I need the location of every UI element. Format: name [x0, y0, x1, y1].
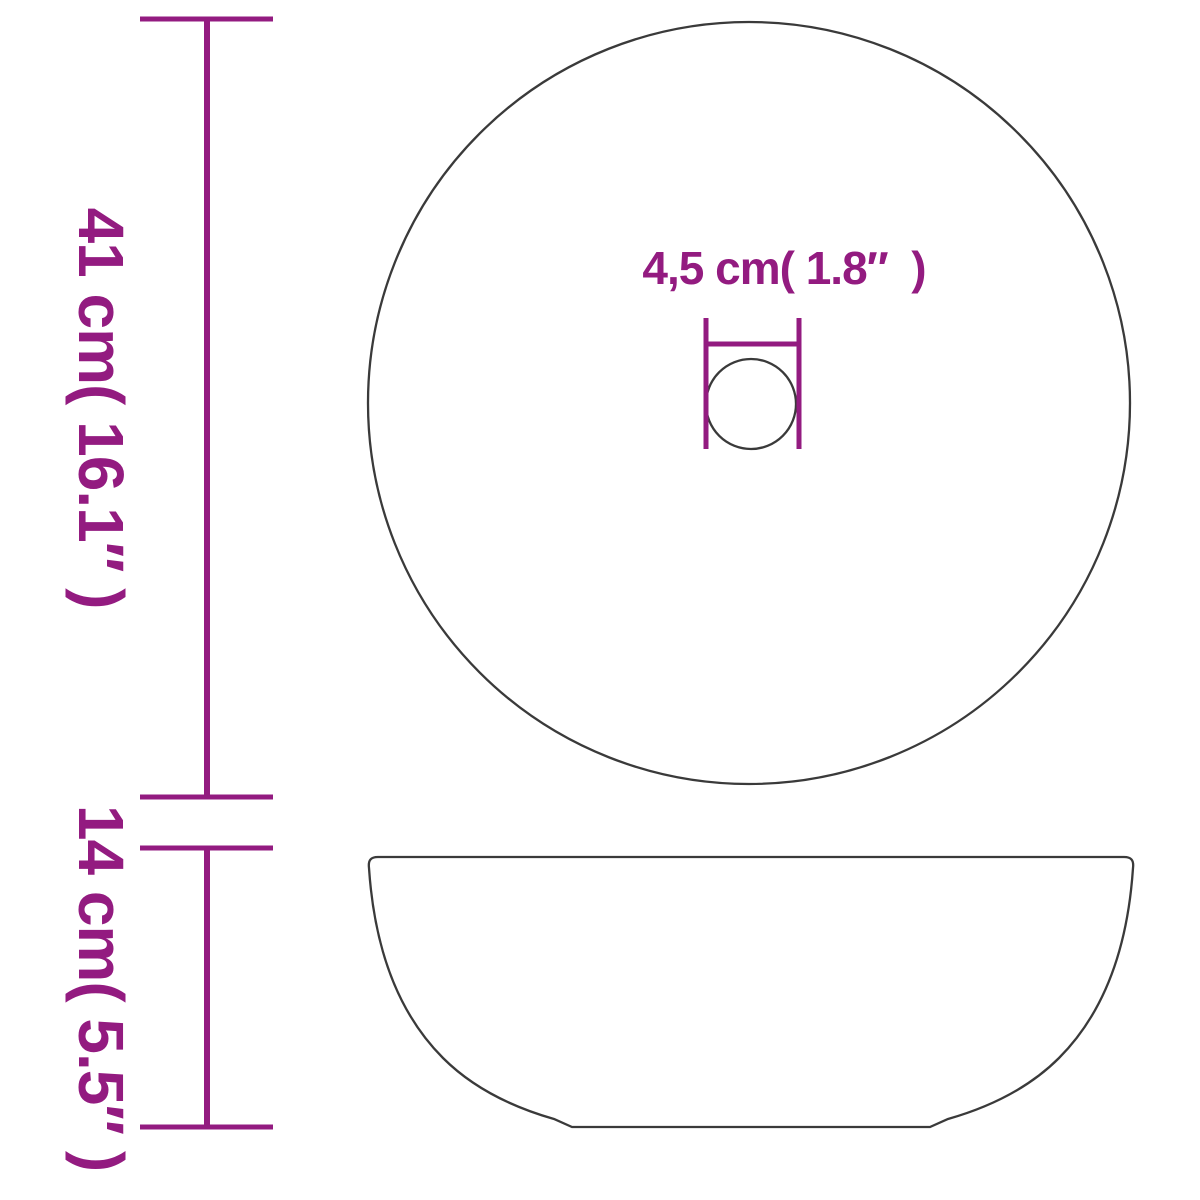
dimension-label-drain-diameter: 4,5 cm( 1.8″ ) [642, 245, 925, 291]
drain-hole-circle [706, 359, 796, 449]
basin-top-view-circle [368, 22, 1130, 784]
product-dimension-diagram: 41 cm( 16.1″ ) 14 cm( 5.5″ ) 4,5 cm( 1.8… [0, 0, 1200, 1200]
diagram-drawing [0, 0, 1200, 1200]
basin-side-view-outline [369, 857, 1133, 1127]
dimension-label-basin-height: 14 cm( 5.5″ ) [69, 805, 133, 1171]
basin-height-dimension [140, 848, 273, 1127]
dimension-label-total-height: 41 cm( 16.1″ ) [69, 208, 133, 609]
total-height-dimension [140, 19, 273, 797]
